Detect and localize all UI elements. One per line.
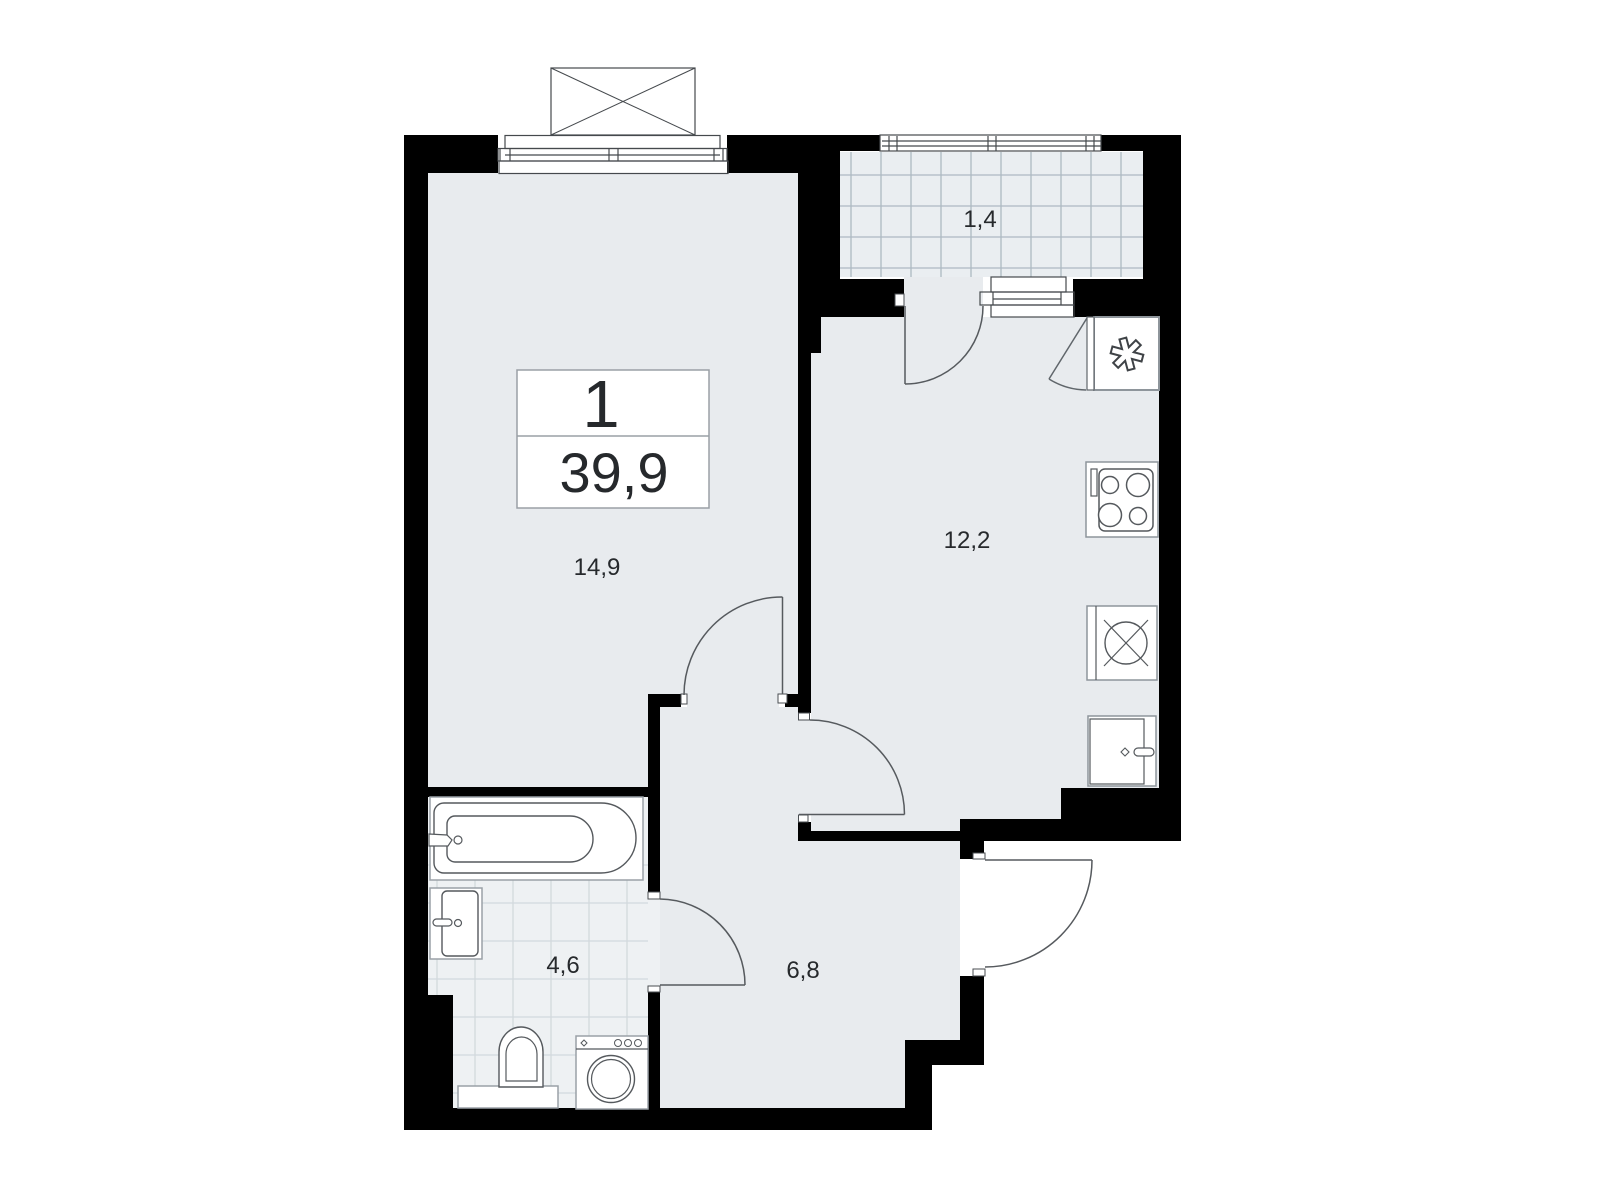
svg-text:12,2: 12,2 bbox=[944, 527, 991, 554]
svg-text:14,9: 14,9 bbox=[574, 554, 621, 581]
svg-text:4,6: 4,6 bbox=[546, 952, 579, 979]
svg-text:1: 1 bbox=[582, 367, 619, 442]
svg-text:39,9: 39,9 bbox=[560, 441, 669, 504]
svg-text:6,8: 6,8 bbox=[786, 957, 819, 984]
svg-text:1,4: 1,4 bbox=[963, 206, 996, 233]
